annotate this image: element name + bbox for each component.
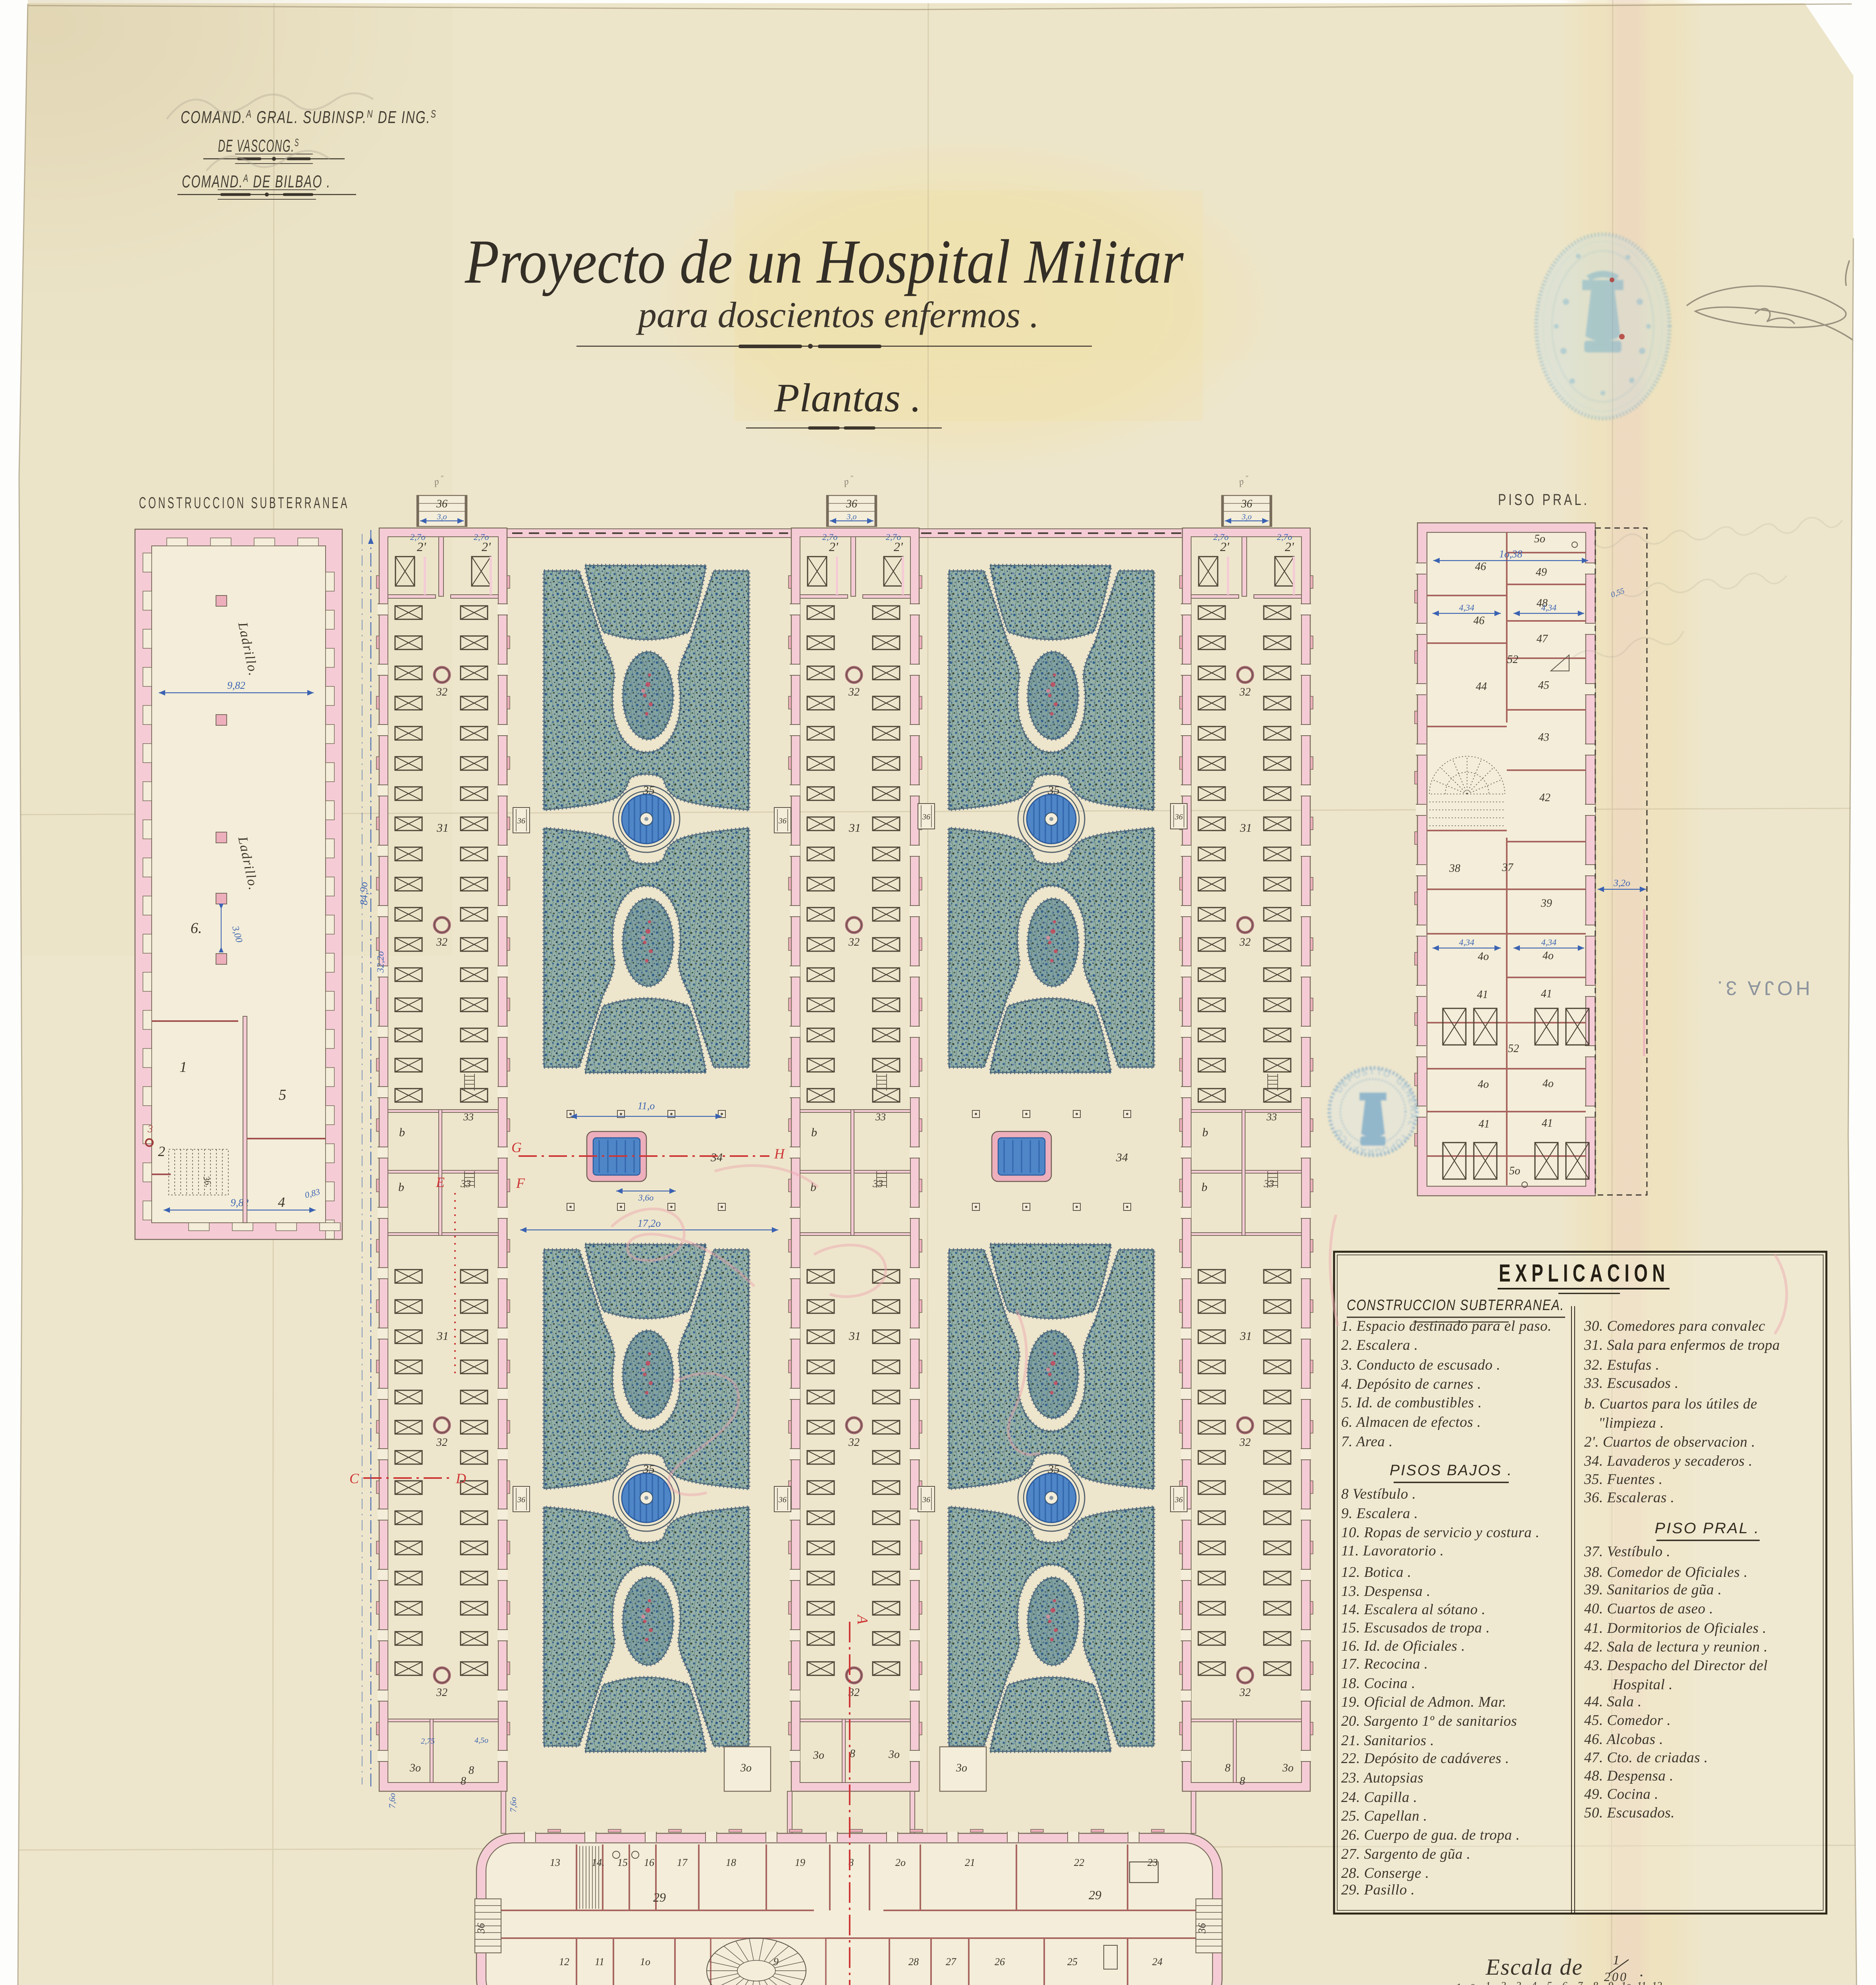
svg-text:11. Lavoratorio .: 11. Lavoratorio .	[1341, 1543, 1444, 1559]
svg-text:18: 18	[726, 1857, 736, 1868]
svg-text:15. Escusados de tropa .: 15. Escusados de tropa .	[1341, 1620, 1490, 1636]
svg-text:32: 32	[1239, 936, 1251, 948]
svg-text:CONSTRUCCION SUBTERRANEA: CONSTRUCCION SUBTERRANEA	[139, 494, 349, 512]
svg-text:22. Depósito de cadáveres .: 22. Depósito de cadáveres .	[1341, 1750, 1509, 1767]
svg-text:5o: 5o	[1534, 533, 1545, 545]
svg-text:Proyecto de un Hospital Milita: Proyecto de un Hospital Militar	[465, 227, 1184, 297]
svg-text:ʺlimpieza .: ʺlimpieza .	[1598, 1415, 1664, 1431]
svg-text:32: 32	[848, 936, 860, 948]
svg-text:3,o: 3,o	[437, 513, 447, 521]
svg-text:33: 33	[875, 1111, 886, 1123]
svg-text:b: b	[811, 1126, 817, 1139]
svg-text:27. Sargento de gũa .: 27. Sargento de gũa .	[1341, 1846, 1471, 1862]
svg-text:31: 31	[436, 821, 449, 834]
svg-text:PISOS BAJOS .: PISOS BAJOS .	[1390, 1462, 1513, 1479]
svg-text:31: 31	[848, 821, 861, 834]
svg-text:D: D	[455, 1470, 466, 1486]
svg-text:o: o	[1470, 1980, 1475, 1985]
svg-text:17: 17	[677, 1857, 688, 1868]
svg-text:para doscientos enfermos .: para doscientos enfermos .	[636, 295, 1039, 335]
svg-text:9: 9	[773, 1956, 779, 1968]
svg-text:3o: 3o	[740, 1762, 752, 1774]
svg-text:Escala de: Escala de	[1485, 1954, 1583, 1980]
svg-text:4o: 4o	[1542, 1077, 1554, 1090]
svg-text:4o: 4o	[1478, 950, 1489, 963]
svg-text:44. Sala .: 44. Sala .	[1584, 1694, 1642, 1710]
svg-text:4,34: 4,34	[1459, 937, 1475, 947]
svg-text:b: b	[1201, 1181, 1207, 1194]
svg-text:32: 32	[436, 936, 447, 948]
svg-text:33: 33	[463, 1111, 474, 1123]
svg-text:b. Cuartos para los útiles d: b. Cuartos para los útiles de	[1584, 1396, 1757, 1412]
svg-text:31: 31	[1240, 1330, 1252, 1343]
svg-text:CONSTRUCCION SUBTERRANEA.: CONSTRUCCION SUBTERRANEA.	[1347, 1297, 1564, 1314]
svg-text:34: 34	[1116, 1151, 1128, 1164]
svg-text:3o: 3o	[813, 1749, 824, 1761]
svg-text:14.: 14.	[592, 1857, 605, 1868]
svg-text:2o: 2o	[895, 1857, 906, 1868]
svg-text:21. Sanitarios .: 21. Sanitarios .	[1341, 1733, 1434, 1749]
svg-text:31: 31	[848, 1330, 861, 1343]
svg-text:7: 7	[1577, 1980, 1583, 1985]
svg-text:Hospital .: Hospital .	[1612, 1677, 1673, 1693]
svg-text:G: G	[511, 1139, 522, 1155]
svg-text:32: 32	[1239, 1436, 1251, 1449]
svg-text:F: F	[516, 1175, 525, 1191]
svg-text:28: 28	[908, 1956, 919, 1968]
svg-text:36: 36	[1196, 1923, 1208, 1934]
svg-text:46: 46	[1473, 615, 1485, 627]
svg-text:8: 8	[1240, 1775, 1245, 1787]
svg-text:G: G	[1374, 1146, 1382, 1157]
svg-text:1: 1	[1456, 1981, 1461, 1985]
svg-text:1. Espacio destinado para el p: 1. Espacio destinado para el paso.	[1341, 1318, 1552, 1334]
svg-text:27: 27	[946, 1956, 956, 1968]
svg-text:2,7o: 2,7o	[474, 532, 489, 542]
svg-text:3o: 3o	[409, 1762, 421, 1774]
svg-text:2,7o: 2,7o	[1277, 532, 1292, 542]
svg-text:10. Ropas de servicio y costur: 10. Ropas de servicio y costura .	[1341, 1524, 1539, 1541]
svg-text:3o: 3o	[956, 1762, 967, 1774]
svg-text:.: .	[1640, 1962, 1644, 1980]
svg-text:4,34: 4,34	[1541, 937, 1557, 947]
svg-text:11,o: 11,o	[638, 1100, 655, 1112]
svg-text:36: 36	[846, 498, 857, 510]
svg-text:5o: 5o	[1509, 1165, 1520, 1177]
svg-text:47: 47	[1537, 633, 1548, 645]
svg-text:41: 41	[1541, 988, 1552, 1000]
svg-text:C: C	[349, 1470, 359, 1486]
svg-text:45. Comedor .: 45. Comedor .	[1584, 1712, 1671, 1729]
svg-text:3. Conducto de escusado .: 3. Conducto de escusado .	[1341, 1357, 1500, 1373]
svg-text:24: 24	[1152, 1956, 1163, 1968]
svg-text:36: 36	[1241, 498, 1252, 510]
svg-text:32: 32	[1239, 686, 1251, 698]
svg-text:52: 52	[1508, 1043, 1519, 1055]
svg-text:4,34: 4,34	[1459, 603, 1475, 613]
svg-text:47. Cto. de criadas .: 47. Cto. de criadas .	[1584, 1750, 1708, 1766]
svg-text:8: 8	[461, 1775, 466, 1787]
svg-text:16. Id. de Oficiales .: 16. Id. de Oficiales .	[1341, 1638, 1465, 1654]
svg-text:25. Capellan .: 25. Capellan .	[1341, 1808, 1427, 1824]
svg-text:PISO PRAL.: PISO PRAL.	[1498, 491, 1589, 509]
svg-text:37: 37	[1502, 861, 1514, 874]
svg-text:2: 2	[158, 1143, 165, 1159]
svg-text:3,o: 3,o	[1242, 513, 1252, 521]
svg-text:4,5o: 4,5o	[474, 1736, 488, 1745]
svg-text:32,2o: 32,2o	[376, 951, 386, 973]
svg-text:29: 29	[1089, 1888, 1101, 1902]
svg-text:11: 11	[1637, 1980, 1646, 1985]
svg-text:5: 5	[279, 1087, 286, 1103]
svg-text:2,7o: 2,7o	[886, 532, 901, 542]
svg-text:I: I	[1371, 1066, 1373, 1076]
svg-text:39. Sanitarios de gũa .: 39. Sanitarios de gũa .	[1584, 1582, 1722, 1598]
svg-text:2: 2	[1501, 1980, 1506, 1985]
svg-text:23. Autopsias: 23. Autopsias	[1341, 1770, 1423, 1786]
svg-text:2. Escalera .: 2. Escalera .	[1341, 1337, 1418, 1353]
svg-text:41: 41	[1479, 1118, 1490, 1130]
svg-text:A: A	[1408, 1112, 1418, 1120]
svg-text:E: E	[436, 1174, 445, 1190]
svg-text:6: 6	[1562, 1980, 1568, 1985]
svg-text:8 Vestíbulo .: 8 Vestíbulo .	[1341, 1486, 1416, 1502]
svg-text:12: 12	[1652, 1980, 1662, 1985]
svg-text:2'. Cuartos de observacion .: 2'. Cuartos de observacion .	[1584, 1434, 1755, 1450]
svg-text:48. Despensa .: 48. Despensa .	[1584, 1768, 1674, 1784]
svg-text:3o: 3o	[888, 1748, 900, 1761]
svg-text:16: 16	[644, 1857, 654, 1868]
svg-text:43: 43	[1538, 731, 1549, 744]
svg-text:32: 32	[1239, 1686, 1251, 1699]
svg-text:9,82: 9,82	[227, 680, 245, 691]
svg-text:41. Dormitorios de Oficiales .: 41. Dormitorios de Oficiales .	[1584, 1620, 1766, 1636]
svg-text:HOJA 3.: HOJA 3.	[1714, 977, 1810, 999]
svg-text:DE VASCONG.S: DE VASCONG.S	[218, 136, 299, 156]
svg-text:39: 39	[1541, 897, 1552, 910]
svg-text:2,7o: 2,7o	[822, 532, 838, 542]
svg-text:44: 44	[1476, 680, 1487, 693]
svg-text:18. Cocina .: 18. Cocina .	[1341, 1675, 1415, 1692]
svg-text:33. Escusados .: 33. Escusados .	[1584, 1375, 1679, 1391]
svg-text:3: 3	[1516, 1980, 1521, 1985]
svg-text:5: 5	[1547, 1980, 1552, 1985]
svg-text:49: 49	[1536, 566, 1547, 578]
svg-text:3,2o: 3,2o	[1613, 878, 1630, 888]
svg-text:R: R	[1367, 1147, 1374, 1157]
svg-text:": "	[850, 474, 853, 482]
svg-text:4,34: 4,34	[1541, 603, 1557, 613]
svg-text:38: 38	[1449, 862, 1460, 875]
svg-text:42: 42	[1539, 792, 1550, 804]
svg-text:8: 8	[1593, 1980, 1598, 1985]
svg-text:6. Almacen de efectos .: 6. Almacen de efectos .	[1341, 1414, 1481, 1430]
svg-text:46. Alcobas .: 46. Alcobas .	[1584, 1731, 1663, 1748]
svg-text:1: 1	[179, 1059, 187, 1075]
svg-text:COMAND.A DE BILBAO .: COMAND.A DE BILBAO .	[182, 172, 331, 191]
svg-text:1o: 1o	[1621, 1980, 1631, 1985]
svg-text:26. Cuerpo de gua. de tropa .: 26. Cuerpo de gua. de tropa .	[1341, 1827, 1520, 1843]
svg-text:4: 4	[1531, 1980, 1537, 1985]
svg-text:24. Capilla .: 24. Capilla .	[1341, 1789, 1417, 1806]
svg-text:29: 29	[653, 1890, 666, 1904]
svg-text:32: 32	[436, 1686, 447, 1699]
svg-text:21: 21	[965, 1857, 975, 1868]
svg-text:30. Comedores para convalec: 30. Comedores para convalec	[1584, 1318, 1765, 1334]
svg-text:R: R	[1408, 1105, 1418, 1112]
svg-text:8: 8	[469, 1764, 474, 1777]
svg-text:b: b	[398, 1181, 404, 1194]
svg-text:38. Comedor de Oficiales .: 38. Comedor de Oficiales .	[1584, 1564, 1748, 1580]
svg-text:34. Lavaderos y secaderos .: 34. Lavaderos y secaderos .	[1584, 1453, 1753, 1469]
svg-text:32: 32	[848, 686, 860, 698]
svg-text:26: 26	[995, 1956, 1005, 1968]
svg-text:": "	[440, 474, 443, 482]
svg-text:28. Conserge .: 28. Conserge .	[1341, 1865, 1429, 1881]
svg-text:4. Depósito de carnes .: 4. Depósito de carnes .	[1341, 1376, 1481, 1392]
svg-text:25: 25	[1067, 1956, 1078, 1968]
svg-text:3o: 3o	[1282, 1762, 1294, 1774]
svg-text:42. Sala de lectura y reunion: 42. Sala de lectura y reunion .	[1584, 1639, 1768, 1655]
svg-text:Plantas .: Plantas .	[774, 376, 921, 420]
svg-text:17,2o: 17,2o	[638, 1218, 661, 1229]
svg-text:13. Despensa .: 13. Despensa .	[1341, 1583, 1431, 1600]
svg-text:29. Pasillo .: 29. Pasillo .	[1341, 1882, 1415, 1898]
svg-text:19: 19	[795, 1857, 805, 1868]
svg-text:52: 52	[1507, 653, 1518, 666]
svg-text:7,6o: 7,6o	[387, 1793, 397, 1809]
svg-text:": "	[1245, 474, 1248, 482]
svg-text:6.: 6.	[191, 920, 202, 937]
svg-text:7,6o: 7,6o	[508, 1797, 518, 1813]
svg-text:45: 45	[1538, 679, 1549, 692]
svg-text:34: 34	[710, 1151, 723, 1164]
svg-text:43. Despacho del Director de: 43. Despacho del Director del	[1584, 1657, 1768, 1674]
svg-text:32: 32	[436, 686, 447, 698]
svg-text:35. Fuentes .: 35. Fuentes .	[1584, 1471, 1663, 1488]
svg-text:1: 1	[1485, 1980, 1490, 1985]
svg-text:40. Cuartos de aseo .: 40. Cuartos de aseo .	[1584, 1601, 1713, 1617]
svg-text:41: 41	[1542, 1117, 1553, 1129]
svg-text:84,9o: 84,9o	[358, 882, 370, 906]
svg-text:20. Sargento 1º de sanitarios: 20. Sargento 1º de sanitarios	[1341, 1713, 1517, 1729]
svg-text:b: b	[1202, 1126, 1208, 1139]
svg-text:22: 22	[1074, 1857, 1084, 1868]
svg-text:2,7o: 2,7o	[410, 532, 426, 542]
svg-text:17. Recocina .: 17. Recocina .	[1341, 1656, 1428, 1672]
svg-text:46: 46	[1475, 561, 1486, 573]
svg-text:H: H	[774, 1146, 785, 1162]
svg-text:32: 32	[848, 1436, 860, 1449]
svg-text:1o,38: 1o,38	[1499, 548, 1523, 560]
svg-text:36. Escaleras .: 36. Escaleras .	[1584, 1490, 1674, 1506]
svg-text:32: 32	[436, 1436, 447, 1449]
svg-text:31. Sala para enfermos de trop: 31. Sala para enfermos de tropa	[1584, 1337, 1780, 1353]
svg-text:2,75: 2,75	[421, 1737, 435, 1746]
svg-text:4: 4	[278, 1194, 285, 1210]
svg-text:4o: 4o	[1478, 1078, 1489, 1091]
svg-text:5. Id. de combustibles .: 5. Id. de combustibles .	[1341, 1395, 1482, 1411]
svg-text:3,6o: 3,6o	[638, 1193, 654, 1203]
svg-text:8: 8	[850, 1748, 855, 1760]
svg-text:33: 33	[872, 1178, 883, 1189]
svg-text:12: 12	[559, 1956, 569, 1968]
svg-text:15: 15	[617, 1857, 628, 1868]
svg-text:1o: 1o	[640, 1956, 650, 1968]
svg-text:9: 9	[1608, 1980, 1614, 1985]
svg-text:12. Botica .: 12. Botica .	[1341, 1564, 1411, 1580]
svg-text:37. Vestíbulo .: 37. Vestíbulo .	[1584, 1544, 1670, 1560]
svg-text:2,7o: 2,7o	[1213, 532, 1229, 542]
svg-text:31: 31	[436, 1330, 449, 1343]
svg-text:23: 23	[1147, 1857, 1158, 1868]
svg-text:13: 13	[550, 1857, 560, 1868]
svg-text:33: 33	[1263, 1178, 1274, 1189]
svg-text:b: b	[399, 1126, 405, 1139]
svg-text:36: 36	[436, 498, 447, 510]
svg-text:8: 8	[1225, 1762, 1230, 1774]
svg-text:49. Cocina .: 49. Cocina .	[1584, 1786, 1658, 1802]
svg-text:4o: 4o	[1542, 950, 1554, 962]
svg-text:3: 3	[147, 1123, 153, 1135]
svg-text:9. Escalera .: 9. Escalera .	[1341, 1505, 1418, 1522]
svg-text:41: 41	[1477, 989, 1488, 1001]
svg-text:50. Escusados.: 50. Escusados.	[1584, 1805, 1675, 1821]
svg-text:32. Estufas .: 32. Estufas .	[1584, 1357, 1659, 1373]
svg-text:A: A	[854, 1614, 871, 1625]
svg-text:36: 36	[475, 1923, 487, 1934]
svg-text:PISO PRAL .: PISO PRAL .	[1655, 1520, 1760, 1537]
svg-text:14. Escalera al sótano .: 14. Escalera al sótano .	[1341, 1601, 1485, 1618]
svg-text:31: 31	[1240, 821, 1252, 834]
svg-text:33: 33	[1266, 1111, 1277, 1123]
svg-text:3,o: 3,o	[846, 513, 857, 521]
svg-text:33: 33	[460, 1178, 471, 1189]
svg-text:19. Oficial de Admon. Mar.: 19. Oficial de Admon. Mar.	[1341, 1694, 1506, 1710]
svg-text:11: 11	[595, 1956, 604, 1968]
svg-text:7. Area .: 7. Area .	[1341, 1434, 1393, 1450]
svg-text:EXPLICACION: EXPLICACION	[1499, 1260, 1670, 1287]
svg-text:1: 1	[1613, 1953, 1620, 1968]
